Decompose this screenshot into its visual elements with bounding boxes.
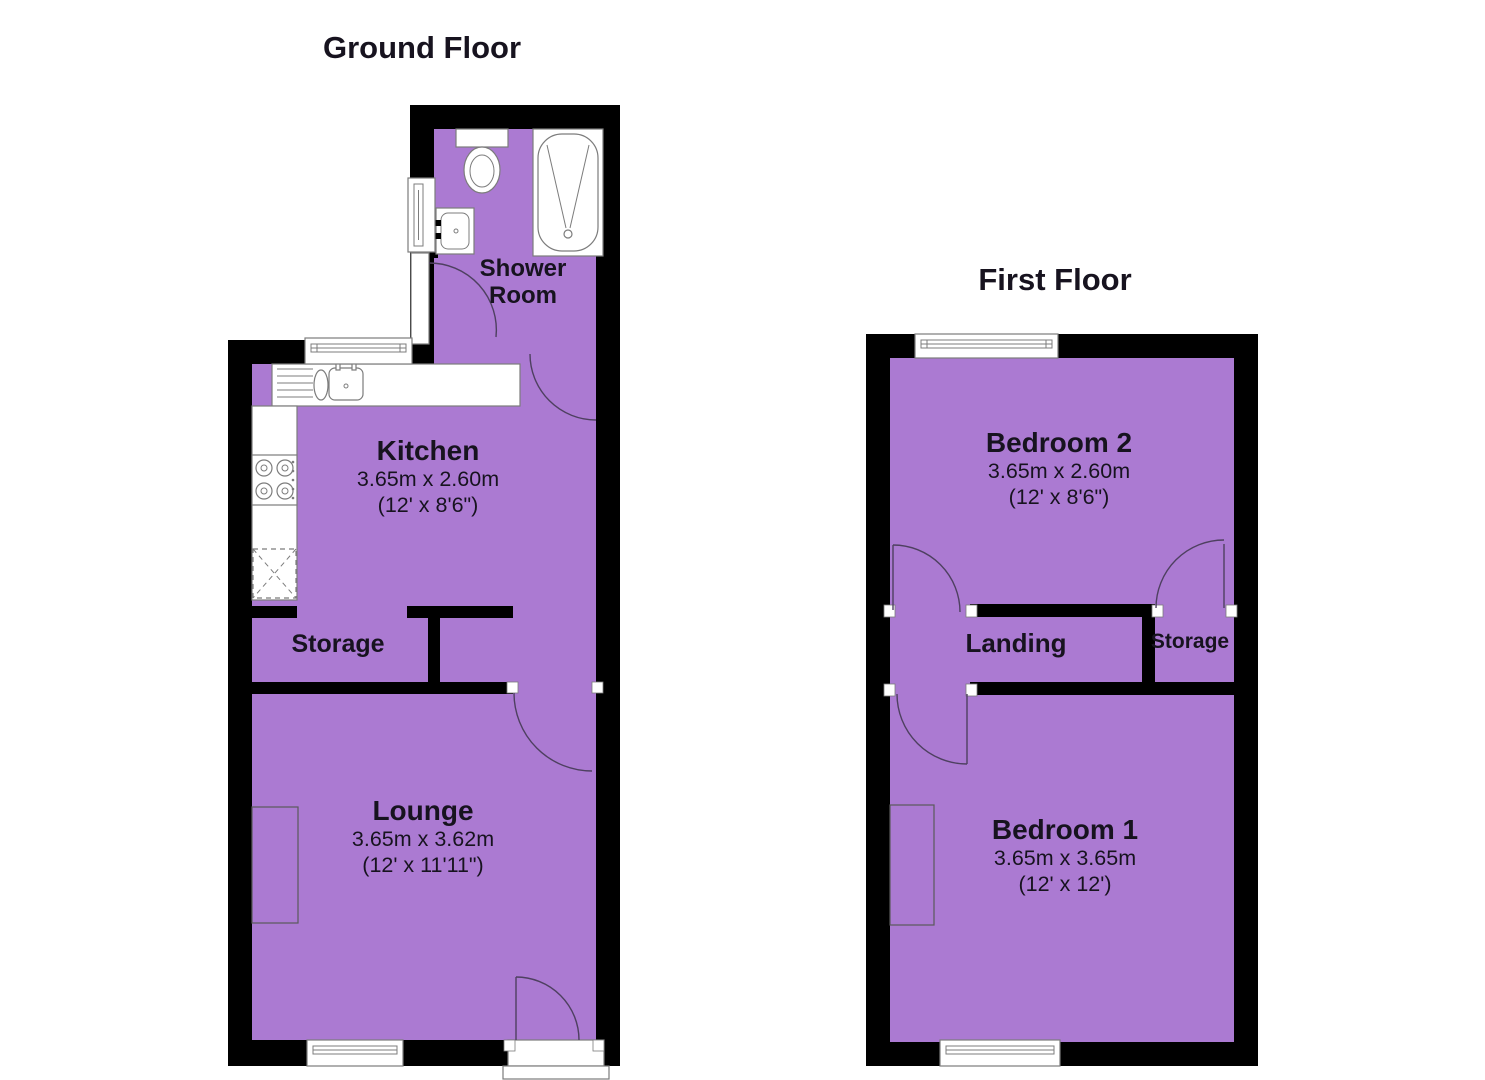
shower-room-window	[408, 178, 435, 252]
room-label-bedroom1: Bedroom 1 3.65m x 3.65m (12' x 12')	[992, 815, 1138, 897]
landing-wall-upper	[970, 604, 1153, 617]
bath-fixture	[533, 129, 603, 256]
ground-floor-plan	[228, 105, 620, 1079]
bedroom2-size-imperial: (12' x 8'6")	[986, 484, 1132, 510]
storage-wall-divider	[428, 606, 440, 694]
kitchen-shower-opening	[528, 340, 596, 366]
door-jamb	[1226, 605, 1237, 617]
kitchen-window	[305, 338, 412, 364]
bedroom1-name: Bedroom 1	[992, 815, 1138, 845]
bedroom1-window	[940, 1040, 1060, 1066]
floorplan-drawing	[0, 0, 1485, 1080]
room-label-kitchen: Kitchen 3.65m x 2.60m (12' x 8'6")	[357, 436, 499, 518]
bedroom2-window	[915, 334, 1058, 358]
door-jamb	[884, 684, 895, 696]
kitchen-size-metric: 3.65m x 2.60m	[357, 466, 499, 492]
lounge-chimney-breast	[252, 807, 298, 923]
bedroom2-size-metric: 3.65m x 2.60m	[986, 458, 1132, 484]
ground-floor-title: Ground Floor	[323, 30, 521, 66]
storage-lounge-wall	[252, 682, 513, 694]
kitchen-size-imperial: (12' x 8'6")	[357, 492, 499, 518]
landing-wall-lower	[970, 682, 1258, 695]
lounge-size-imperial: (12' x 11'11")	[352, 852, 494, 878]
basin-fixture	[433, 208, 474, 254]
room-label-lounge: Lounge 3.65m x 3.62m (12' x 11'11")	[352, 796, 494, 878]
bedroom1-size-metric: 3.65m x 3.65m	[992, 845, 1138, 871]
appliance-space	[253, 549, 296, 598]
lounge-size-metric: 3.65m x 3.62m	[352, 826, 494, 852]
room-label-landing: Landing	[965, 628, 1066, 659]
hob-fixture	[252, 455, 297, 505]
bedroom1-size-imperial: (12' x 12')	[992, 871, 1138, 897]
room-label-storage-ground: Storage	[291, 630, 384, 659]
storage-wall-right	[407, 606, 513, 618]
storage-wall-left	[252, 606, 297, 618]
bedroom2-name: Bedroom 2	[986, 428, 1132, 458]
lounge-name: Lounge	[352, 796, 494, 826]
first-floor-title: First Floor	[978, 262, 1131, 298]
bedroom1-chimney-breast	[890, 805, 934, 925]
room-label-storage-first: Storage	[1151, 630, 1229, 654]
kitchen-name: Kitchen	[357, 436, 499, 466]
lounge-window	[307, 1040, 403, 1066]
door-jamb	[1152, 605, 1163, 617]
room-label-bedroom2: Bedroom 2 3.65m x 2.60m (12' x 8'6")	[986, 428, 1132, 510]
room-label-shower-room: Shower Room	[467, 255, 579, 309]
floorplan-page: Ground Floor First Floor Shower Room Kit…	[0, 0, 1485, 1080]
door-jamb	[966, 605, 977, 617]
